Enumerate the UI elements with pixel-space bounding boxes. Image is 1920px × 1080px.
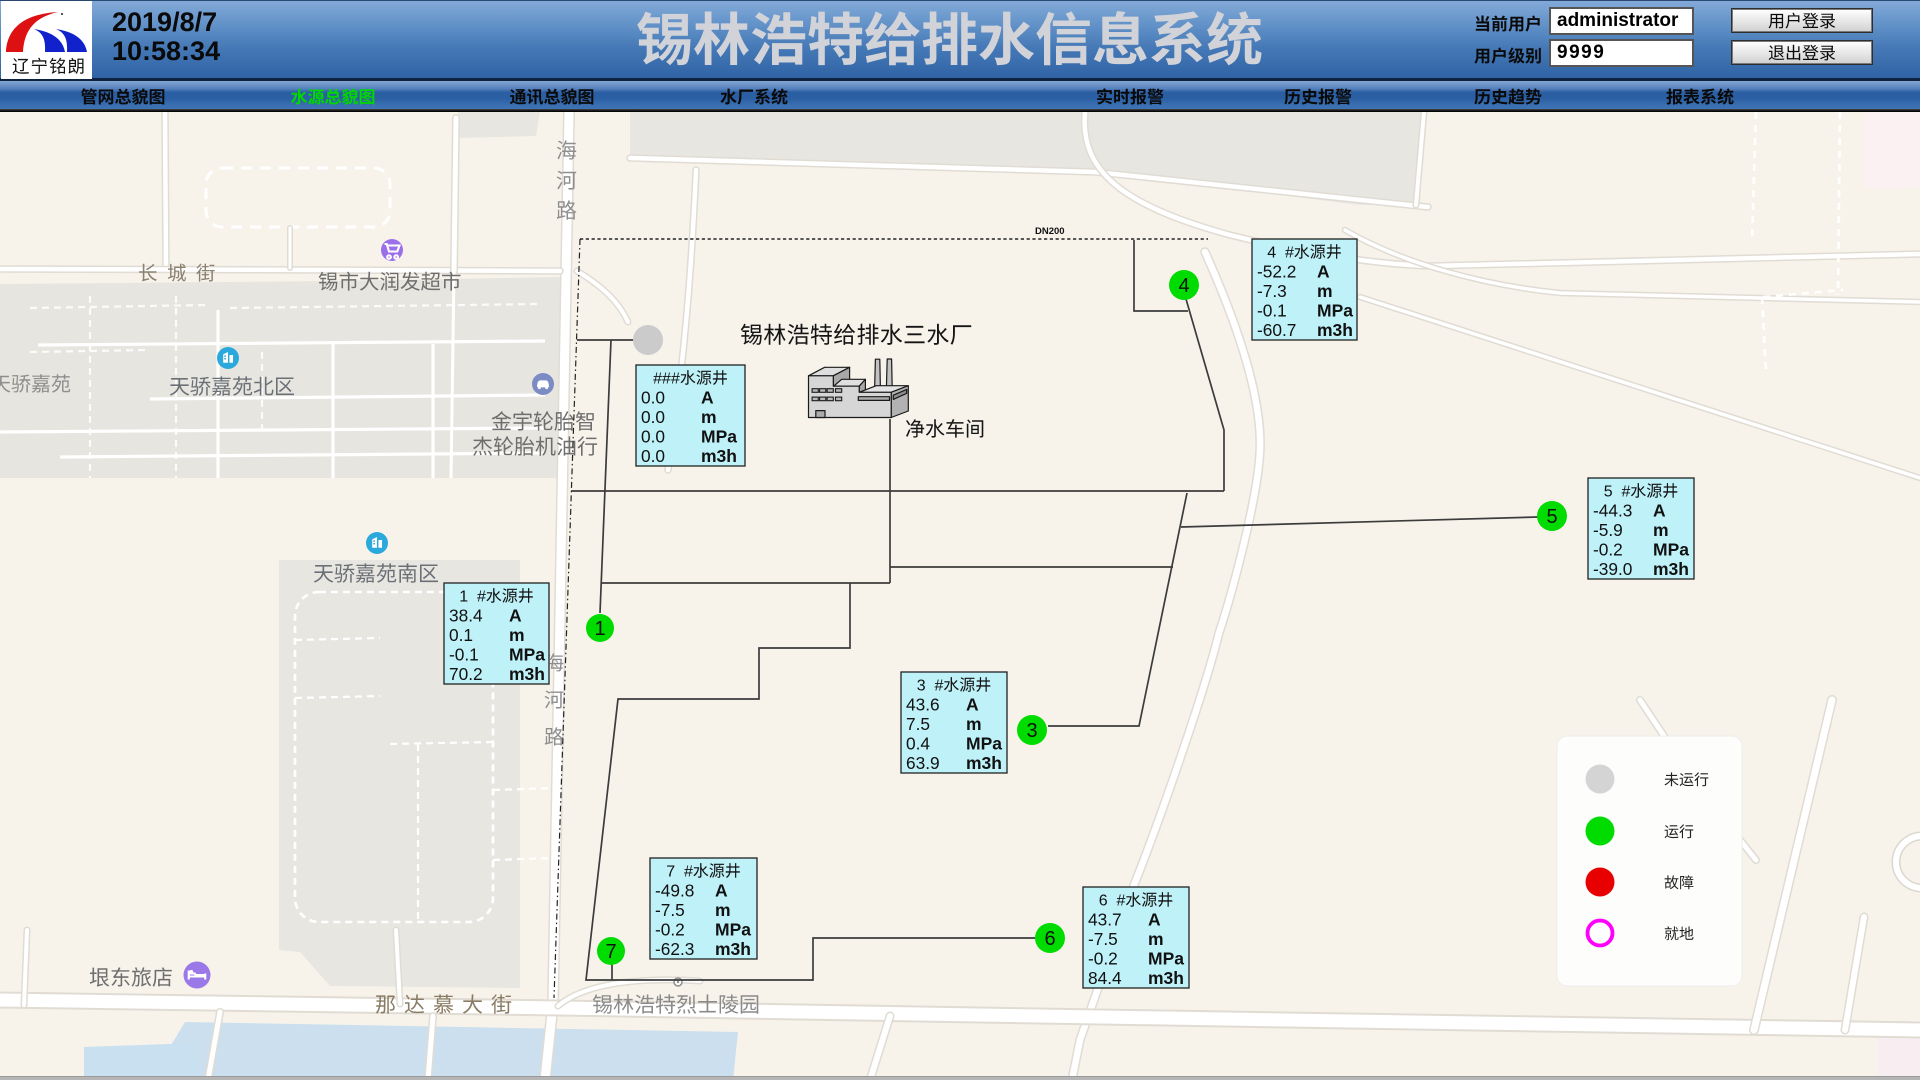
svg-text:MPa: MPa (715, 920, 751, 940)
svg-text:m: m (701, 407, 717, 427)
svg-text:-7.5: -7.5 (1088, 929, 1118, 949)
svg-text:m: m (966, 714, 982, 734)
svg-text:DN200: DN200 (1035, 226, 1065, 237)
svg-text:7: 7 (605, 941, 616, 963)
svg-text:m3h: m3h (715, 939, 751, 959)
svg-text:7.5: 7.5 (906, 714, 930, 734)
svg-text:-0.2: -0.2 (1593, 540, 1623, 560)
svg-text:A: A (701, 387, 714, 407)
svg-text:-0.1: -0.1 (449, 645, 479, 665)
svg-text:m3h: m3h (966, 753, 1002, 773)
svg-text:-52.2: -52.2 (1257, 261, 1296, 281)
svg-text:MPa: MPa (509, 645, 545, 665)
svg-text:43.7: 43.7 (1088, 909, 1122, 929)
svg-text:A: A (1653, 500, 1666, 520)
svg-text:-60.7: -60.7 (1257, 320, 1296, 340)
svg-text:3: 3 (1026, 720, 1037, 742)
svg-text:A: A (1317, 261, 1330, 281)
svg-text:5: 5 (1546, 506, 1557, 528)
svg-text:m3h: m3h (1653, 559, 1689, 579)
svg-text:84.4: 84.4 (1088, 968, 1122, 988)
svg-text:7 #: 7 # (666, 864, 693, 881)
svg-text:-7.3: -7.3 (1257, 281, 1287, 301)
svg-text:-44.3: -44.3 (1593, 500, 1632, 520)
svg-text:63.9: 63.9 (906, 753, 940, 773)
svg-text:m3h: m3h (1148, 968, 1184, 988)
svg-text:0.4: 0.4 (906, 734, 930, 754)
svg-text:MPa: MPa (1148, 949, 1184, 969)
svg-text:-39.0: -39.0 (1593, 559, 1632, 579)
svg-text:###: ### (653, 371, 680, 388)
svg-text:m: m (509, 625, 525, 645)
svg-text:-49.8: -49.8 (655, 880, 694, 900)
svg-text:6: 6 (1044, 928, 1055, 950)
svg-text:MPa: MPa (966, 734, 1002, 754)
svg-text:4: 4 (1178, 275, 1189, 297)
svg-text:m: m (1148, 929, 1164, 949)
svg-text:0.0: 0.0 (641, 387, 665, 407)
svg-text:1 #: 1 # (459, 589, 486, 606)
svg-text:A: A (1148, 909, 1161, 929)
svg-text:0.0: 0.0 (641, 407, 665, 427)
svg-text:70.2: 70.2 (449, 664, 483, 684)
svg-text:1: 1 (594, 618, 605, 640)
svg-text:-0.1: -0.1 (1257, 301, 1287, 321)
svg-text:MPa: MPa (701, 427, 737, 447)
svg-text:MPa: MPa (1653, 540, 1689, 560)
svg-text:0.0: 0.0 (641, 427, 665, 447)
svg-text:A: A (715, 880, 728, 900)
svg-text:m: m (1653, 520, 1669, 540)
svg-text:43.6: 43.6 (906, 694, 940, 714)
svg-text:-0.2: -0.2 (655, 920, 685, 940)
svg-text:4 #: 4 # (1267, 245, 1294, 262)
svg-text:5 #: 5 # (1604, 484, 1631, 501)
svg-text:-0.2: -0.2 (1088, 949, 1118, 969)
svg-text:-7.5: -7.5 (655, 900, 685, 920)
svg-text:-62.3: -62.3 (655, 939, 694, 959)
svg-text:3 #: 3 # (917, 678, 944, 695)
svg-text:A: A (966, 694, 979, 714)
svg-text:m3h: m3h (509, 664, 545, 684)
svg-text:m3h: m3h (701, 446, 737, 466)
svg-text:38.4: 38.4 (449, 605, 483, 625)
svg-text:m: m (715, 900, 731, 920)
svg-text:0.0: 0.0 (641, 446, 665, 466)
svg-text:m: m (1317, 281, 1333, 301)
svg-text:A: A (509, 605, 522, 625)
svg-text:m3h: m3h (1317, 320, 1353, 340)
svg-text:6 #: 6 # (1099, 893, 1126, 910)
svg-text:-5.9: -5.9 (1593, 520, 1623, 540)
svg-text:MPa: MPa (1317, 301, 1353, 321)
svg-text:0.1: 0.1 (449, 625, 473, 645)
